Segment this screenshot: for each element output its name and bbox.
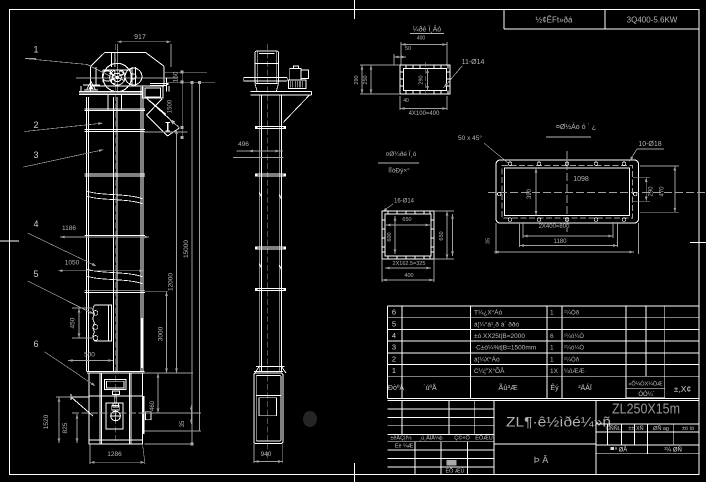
svg-text:50 x 45°: 50 x 45° (458, 134, 482, 142)
svg-text:ÈÕÆÚ: ÈÕÆÚ (475, 435, 492, 442)
svg-text:1: 1 (550, 345, 554, 352)
svg-text:3Q400-5.6KW: 3Q400-5.6KW (627, 16, 678, 25)
svg-text:¼ÑÑL: ¼ÑÑL (605, 425, 621, 432)
svg-text:¹¼Óð: ¹¼Óð (564, 310, 580, 317)
svg-text:50: 50 (405, 46, 411, 52)
svg-text:ÍÏòÐý×°: ÍÏòÐý×° (388, 166, 410, 175)
svg-text:290: 290 (649, 186, 655, 197)
svg-text:16-Ø14: 16-Ø14 (394, 199, 415, 205)
svg-text:¸ü¸ÄÎÄ¼þ: ¸ü¸ÄÎÄ¼þ (419, 435, 442, 442)
svg-text:4X100=400: 4X100=400 (409, 111, 441, 117)
svg-text:¤Ø½Áo ó ´ ¿: ¤Ø½Áo ó ´ ¿ (556, 122, 596, 131)
svg-text:470: 470 (660, 186, 666, 197)
svg-text:400: 400 (404, 273, 413, 279)
svg-text:3: 3 (392, 343, 396, 352)
svg-text:¹¼ ØÑ: ¹¼ ØÑ (664, 447, 682, 454)
svg-text:3000: 3000 (158, 326, 165, 341)
svg-text:ÒÓ¼´: ÒÓ¼´ (638, 391, 654, 398)
svg-text:Ç©×Ö: Ç©×Ö (454, 435, 470, 442)
svg-text:496: 496 (238, 141, 249, 148)
svg-text:650: 650 (439, 231, 445, 240)
svg-text:¼ðé Ï¸Áó: ¼ðé Ï¸Áó (413, 25, 442, 34)
svg-text:1186: 1186 (62, 225, 76, 232)
svg-text:²ÄÁÏ: ²ÄÁÏ (578, 383, 592, 392)
svg-text:±± XÑ: ±± XÑ (628, 425, 643, 432)
svg-text:C¼¦"X°ÕÅ: C¼¦"X°ÕÅ (474, 366, 505, 375)
svg-text:400: 400 (417, 36, 426, 42)
svg-text:1: 1 (550, 310, 554, 317)
svg-text:±ó XX25t|B=2000: ±ó XX25t|B=2000 (474, 333, 525, 340)
svg-text:1520: 1520 (43, 414, 50, 429)
svg-text:¹¼ó¼Ó: ¹¼ó¼Ó (564, 333, 584, 340)
svg-text:ÐòºÅ: ÐòºÅ (388, 383, 405, 392)
svg-text:450: 450 (70, 317, 77, 328)
svg-text:ZL¶·ê½ìðé¼»ñ: ZL¶·ê½ìðé¼»ñ (506, 414, 611, 430)
svg-text:5: 5 (392, 319, 396, 328)
svg-text:15000: 15000 (183, 240, 190, 258)
svg-text:35: 35 (486, 238, 492, 244)
svg-text:á¦¼X°Áó: á¦¼X°Áó (474, 354, 500, 363)
svg-text:2X400=800: 2X400=800 (539, 224, 571, 230)
svg-text:¹¼ó¼Ó: ¹¼ó¼Ó (564, 345, 584, 352)
svg-text:±,X¢: ±,X¢ (674, 384, 692, 394)
svg-text:2: 2 (392, 354, 396, 363)
svg-text:·C±ó¼%t|B=1500mm: ·C±ó¼%t|B=1500mm (474, 345, 536, 352)
svg-text:ª ØÅ: ª ØÅ (615, 447, 628, 454)
svg-text:460: 460 (150, 400, 156, 411)
svg-text:¼ôÆÆ·: ¼ôÆÆ· (564, 369, 586, 375)
svg-text:35: 35 (180, 420, 186, 427)
svg-text:4: 4 (33, 219, 38, 229)
svg-text:917: 917 (134, 34, 146, 41)
svg-text:Éè ¼Æ: Éè ¼Æ (395, 443, 414, 450)
svg-text:1098: 1098 (573, 176, 589, 183)
svg-text:940: 940 (261, 451, 272, 458)
svg-text:1500: 1500 (168, 99, 174, 113)
svg-text:3: 3 (33, 150, 38, 160)
svg-text:150: 150 (173, 71, 180, 82)
svg-text:650: 650 (402, 217, 411, 223)
svg-text:4: 4 (392, 331, 396, 340)
svg-text:1X: 1X (550, 368, 559, 375)
svg-text:»Õ¼ÓX¼ÖÆ: »Õ¼ÓX¼ÖÆ (628, 381, 663, 388)
svg-text:11-Ø14: 11-Ø14 (462, 59, 485, 66)
svg-text:1050: 1050 (65, 260, 80, 267)
svg-text:12000: 12000 (168, 273, 175, 291)
svg-text:±ö ìö: ±ö ìö (682, 426, 694, 432)
svg-text:290: 290 (354, 75, 360, 84)
svg-text:825: 825 (62, 422, 69, 433)
svg-text:6: 6 (33, 339, 38, 349)
svg-text:ZL250X15m: ZL250X15m (612, 402, 680, 418)
svg-text:5: 5 (33, 269, 38, 279)
svg-text:ØÑ ag: ØÑ ag (653, 425, 669, 432)
svg-text:ÈÕ ÆÚ: ÈÕ ÆÚ (446, 468, 465, 475)
svg-text:¤Ø¼ðé Ï¸ó: ¤Ø¼ðé Ï¸ó (386, 150, 417, 158)
svg-text:40: 40 (403, 98, 409, 104)
svg-text:1: 1 (33, 45, 38, 55)
svg-text:600: 600 (387, 232, 393, 241)
svg-text:Êý: Êý (550, 383, 559, 392)
svg-text:á¦¼°á¹¸ð á´ ððó: á¦¼°á¹¸ð á´ ððó (474, 320, 520, 328)
svg-text:1180: 1180 (554, 239, 568, 245)
svg-text:Þ Â: Þ Â (534, 455, 549, 465)
svg-text:10-Ø18: 10-Ø18 (638, 141, 661, 148)
svg-text:290: 290 (419, 75, 425, 84)
svg-text:½¢ÊFt»ðá: ½¢ÊFt»ðá (536, 16, 573, 25)
svg-text:Ãû³Æ: Ãû³Æ (498, 383, 518, 392)
svg-text:±êÅÇ|I½: ±êÅÇ|I½ (390, 435, 412, 442)
svg-text:390: 390 (527, 188, 533, 199)
svg-text:6: 6 (550, 333, 554, 340)
svg-text:2: 2 (33, 120, 38, 130)
svg-text:6: 6 (392, 308, 396, 317)
svg-text:1: 1 (392, 366, 396, 375)
svg-text:250: 250 (363, 75, 369, 84)
svg-text:1286: 1286 (107, 451, 122, 458)
svg-text:1: 1 (550, 356, 554, 363)
svg-text:500: 500 (84, 352, 95, 359)
svg-text:´úºÅ: ´úºÅ (423, 383, 437, 392)
svg-text:T¼¿X°Áó: T¼¿X°Áó (474, 308, 503, 317)
svg-text:¹¼Óð: ¹¼Óð (564, 356, 580, 363)
svg-text:2X162.5=325: 2X162.5=325 (393, 261, 426, 267)
